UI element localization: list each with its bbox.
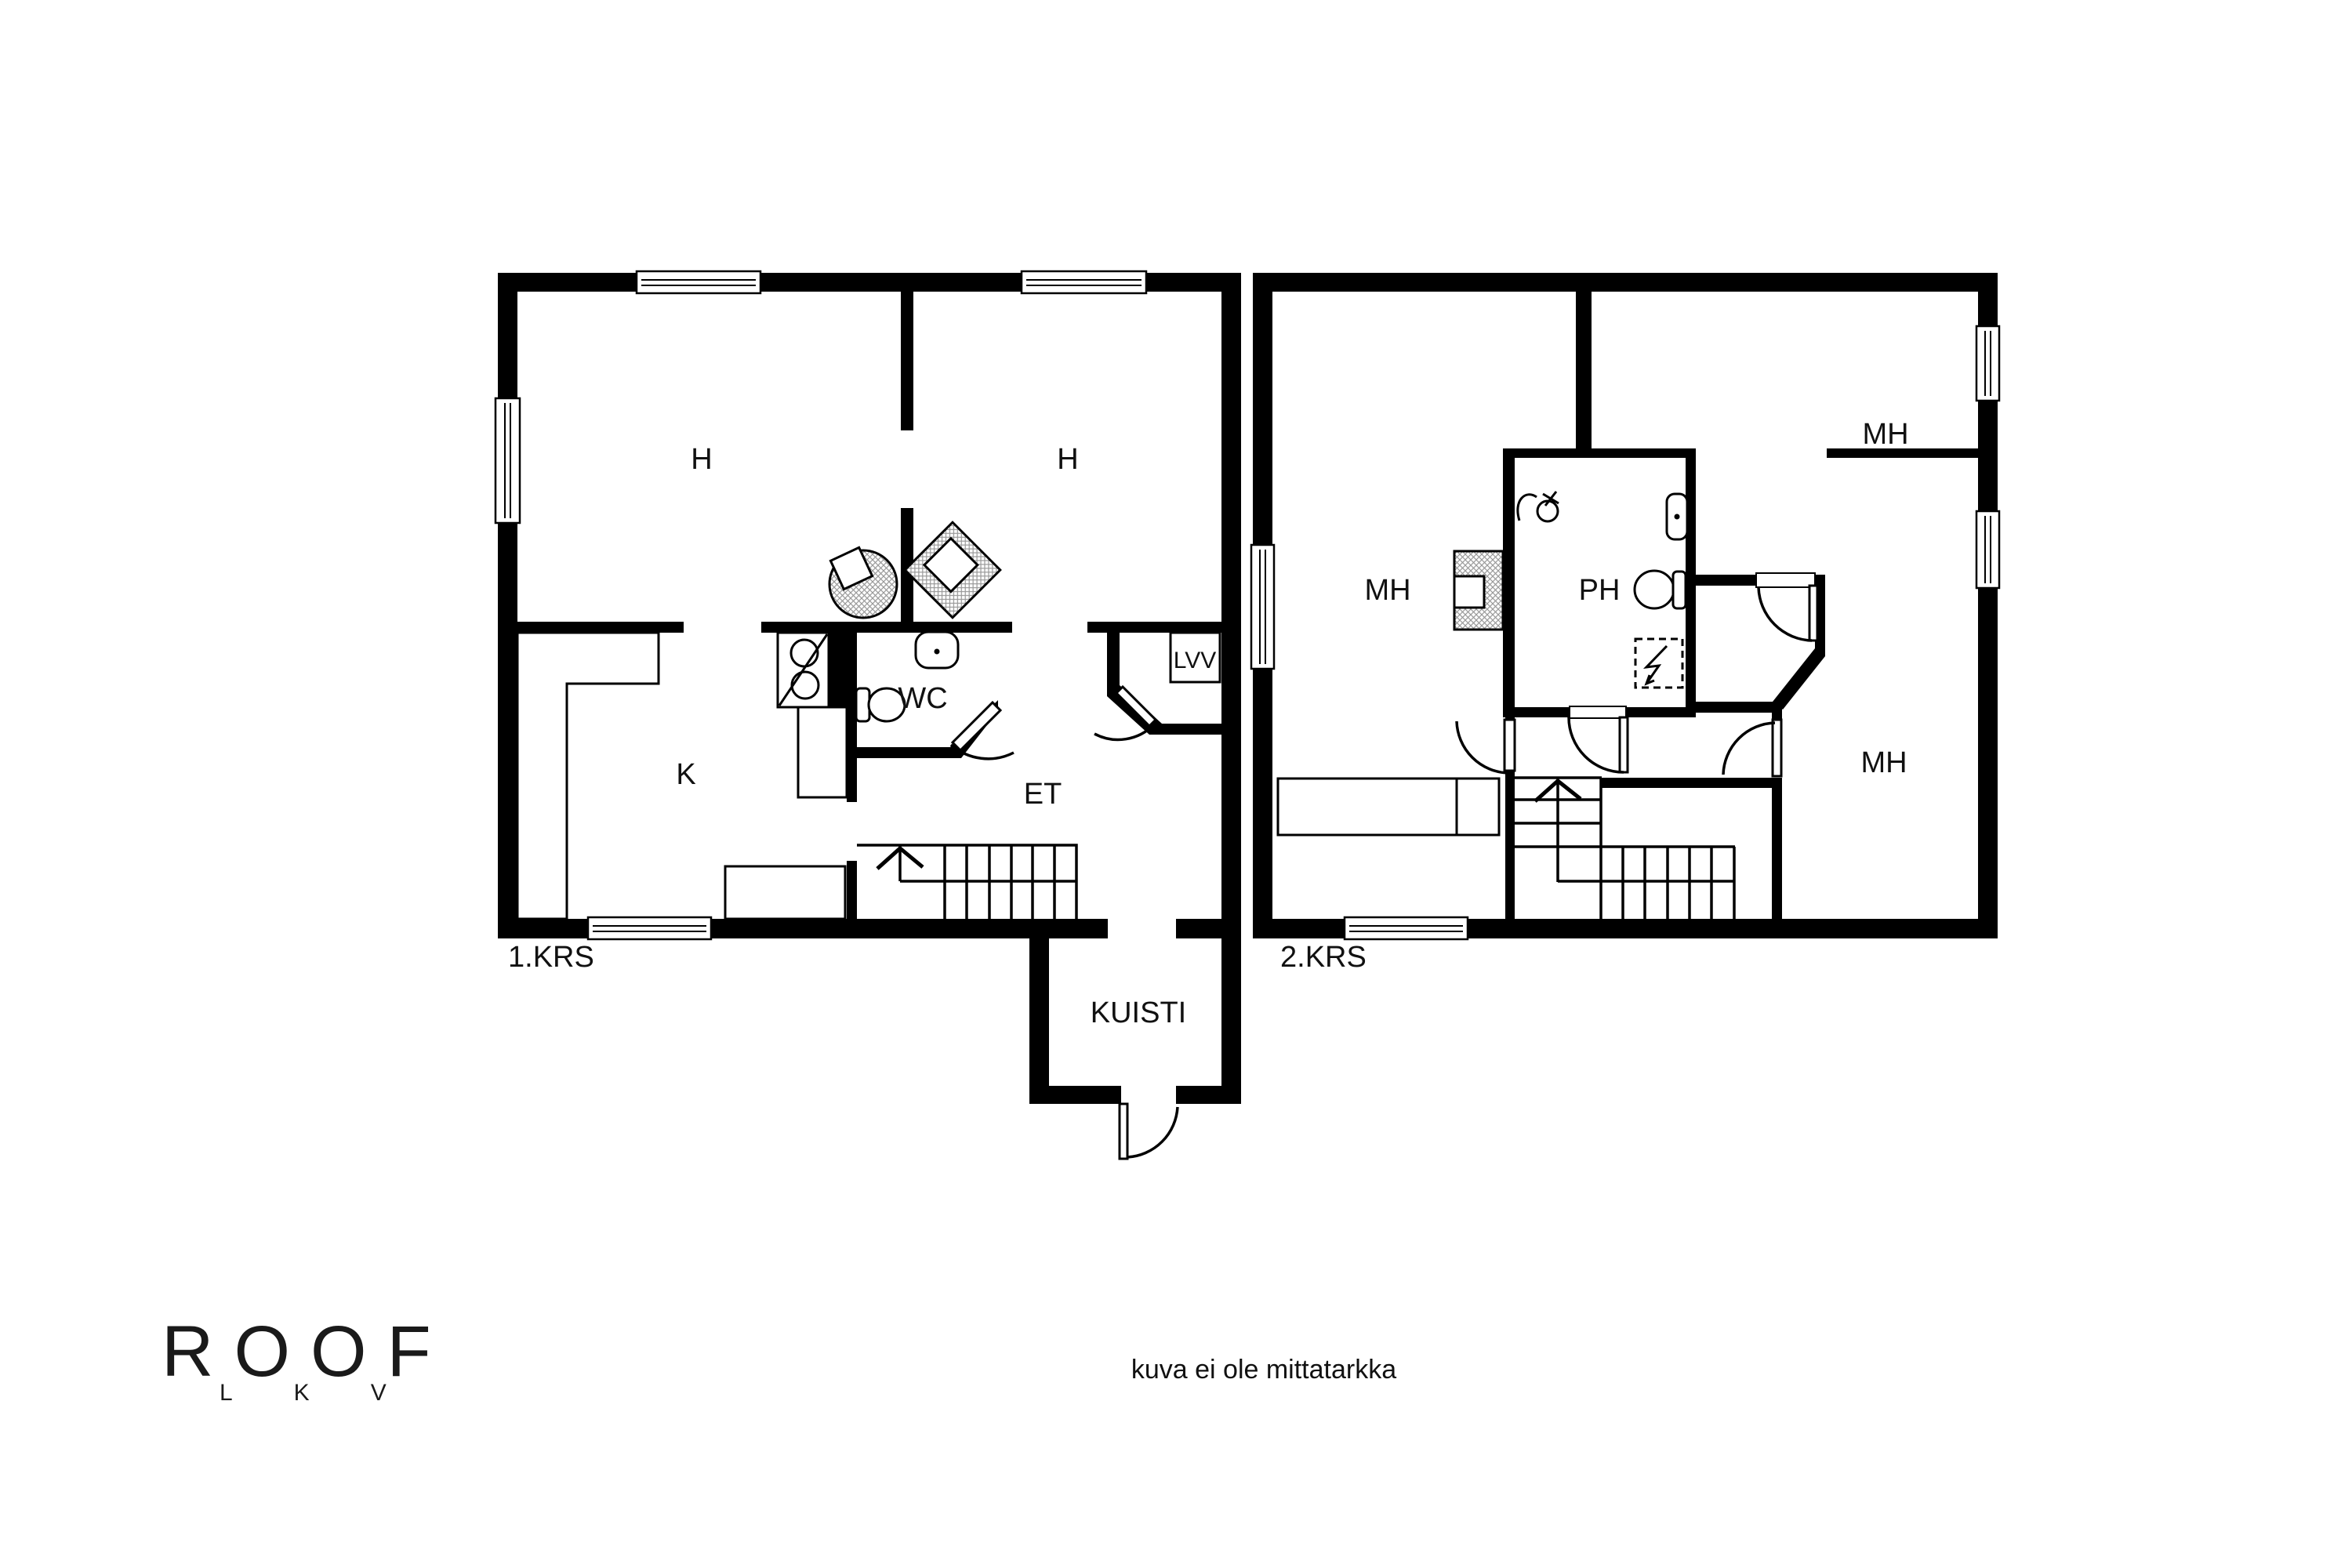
wall-lvv-bottom: [1158, 724, 1221, 735]
armchair: [905, 522, 1000, 618]
floor-1-plan: H H K WC ET LVV KUISTI 1.KRS: [495, 271, 1241, 1159]
floor-2-plan: MH PH MH MH 2.KRS: [1251, 273, 1999, 974]
window-right-1: [1976, 326, 1999, 401]
chimney-flue: [1454, 576, 1484, 608]
chimney: [1454, 551, 1503, 630]
floor-drain-appliance: [1635, 639, 1682, 688]
wall-right: [1221, 273, 1241, 1104]
sink-drain-icon: [1675, 514, 1680, 520]
stairs-floor1: [857, 845, 1076, 919]
wall-ph-left: [1503, 448, 1515, 716]
logo-lkv: LKV: [220, 1380, 448, 1406]
toilet-bowl-icon: [1635, 571, 1674, 608]
wall-lvv-top: [1087, 622, 1241, 633]
wall-lvv-left: [1107, 633, 1120, 691]
window-frame: [588, 917, 711, 939]
closet-door-threshold: [1756, 573, 1815, 587]
window-frame: [1251, 545, 1274, 669]
wall-wc-left: [847, 707, 857, 802]
bedroom-left-door: [1457, 720, 1515, 773]
room-label-kuisti: KUISTI: [1091, 996, 1186, 1029]
porch-door-opening: [1121, 1084, 1176, 1105]
floorplan-page: H H K WC ET LVV KUISTI 1.KRS: [0, 0, 2352, 1568]
door-leaf: [1620, 717, 1628, 772]
window-frame: [1022, 271, 1146, 293]
window-frame: [1976, 511, 1999, 588]
floor-1-walls: [498, 273, 1241, 1104]
room-label-et: ET: [1024, 778, 1062, 811]
floor-1-label: 1.KRS: [508, 941, 594, 974]
window-right-2: [1976, 511, 1999, 588]
door-leaf: [1120, 1104, 1127, 1159]
wall-closet-top: [1696, 575, 1756, 586]
bed: [1278, 779, 1499, 835]
window-frame: [495, 398, 520, 523]
room-label-kitchen: K: [676, 758, 695, 791]
bed-outline: [1278, 779, 1499, 835]
door-swing-arc: [1723, 723, 1775, 775]
room-label-h-left: H: [691, 443, 712, 476]
room-label-mh-bottom-right: MH: [1860, 746, 1907, 779]
window-top-1: [637, 271, 760, 293]
wall-wc-stub: [829, 633, 857, 707]
wall-ph-top: [1503, 448, 1696, 458]
toilet-tank-icon: [856, 688, 869, 721]
room-label-mh-top-right: MH: [1862, 418, 1908, 451]
porch-entry-door: [1120, 1104, 1178, 1159]
wall-top-divider: [1576, 292, 1592, 449]
porch-doorway-opening: [1108, 917, 1176, 940]
window-frame: [1976, 326, 1999, 401]
door-swing-arc: [1759, 587, 1812, 641]
shower-hose-icon: [1518, 495, 1537, 521]
floor-2-label: 2.KRS: [1280, 941, 1367, 974]
sink-drain-icon: [935, 649, 940, 655]
bedroom-bottom-right-door: [1723, 720, 1781, 776]
disclaimer-text: kuva ei ole mittatarkka: [1131, 1355, 1396, 1385]
door-leaf: [1773, 720, 1781, 776]
ph-door-threshold: [1570, 706, 1626, 718]
door-leaf: [1504, 720, 1515, 771]
window-frame: [637, 271, 760, 293]
wall-h-kitchen: [517, 622, 684, 633]
h-room-furniture: [829, 522, 1000, 618]
footer: ROOF LKV kuva ei ole mittatarkka: [162, 1312, 1396, 1406]
cabinet-box: [798, 707, 847, 797]
wall-mh-right-side: [1772, 788, 1782, 919]
window-left: [495, 398, 520, 523]
room-label-ph: PH: [1579, 574, 1621, 607]
wall-corridor-right-stub: [1772, 702, 1782, 720]
wall-diagonal: [1773, 648, 1825, 710]
wall-top: [1253, 273, 1998, 292]
closet-door: [1759, 586, 1817, 641]
room-label-lvv: LVV: [1174, 648, 1216, 673]
stairs-floor2: [1515, 778, 1735, 919]
window-frame: [1345, 917, 1468, 939]
window-bottom: [1345, 917, 1468, 939]
porch-wall-left: [1029, 919, 1049, 1104]
toilet-tank-icon: [1673, 572, 1686, 608]
wall-corridor-bottom: [1602, 778, 1782, 788]
window-bottom: [588, 917, 711, 939]
wall-closet-bottom: [1696, 702, 1774, 713]
window-left: [1251, 545, 1274, 669]
wall-wc-top: [761, 622, 1012, 633]
room-label-h-right: H: [1057, 443, 1078, 476]
hall-closet: [725, 866, 845, 919]
door-leaf: [953, 702, 1000, 750]
floorplan-drawing: H H K WC ET LVV KUISTI 1.KRS: [0, 0, 2352, 1568]
room-label-wc: WC: [898, 682, 947, 715]
kitchen-counter: [517, 633, 659, 919]
wall-h-divider-upper: [901, 292, 913, 430]
door-swing-arc: [1457, 721, 1508, 773]
wall-ph-right: [1686, 448, 1696, 716]
window-top-2: [1022, 271, 1146, 293]
ph-door: [1569, 717, 1628, 772]
door-swing-arc: [1127, 1107, 1178, 1157]
wall-left: [498, 273, 517, 938]
room-label-mh-left: MH: [1364, 574, 1410, 607]
wall-wc-bottom: [857, 747, 950, 758]
door-leaf: [1809, 586, 1817, 641]
wall-stair-stub: [847, 861, 857, 919]
wall-stair-left-lower: [1505, 771, 1515, 919]
door-swing-arc: [1569, 717, 1624, 772]
